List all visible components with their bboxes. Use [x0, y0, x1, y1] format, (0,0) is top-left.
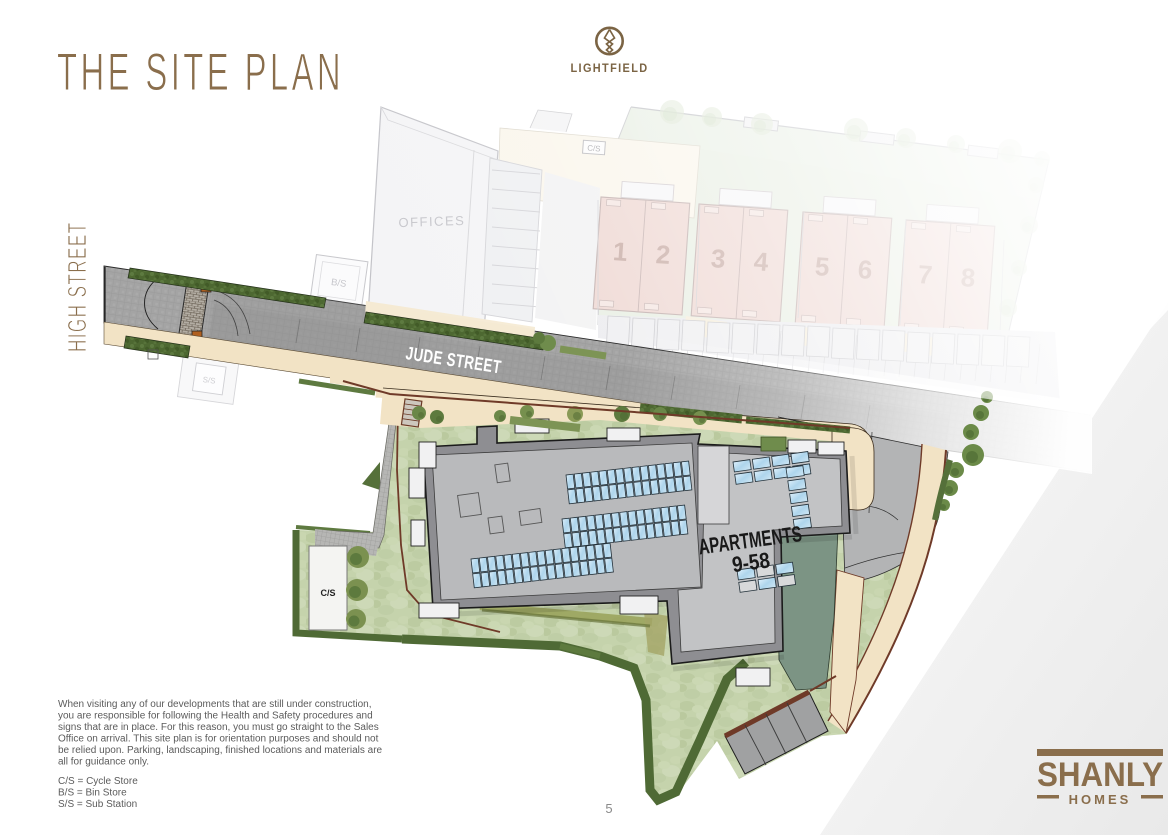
svg-text:When visiting any of our devel: When visiting any of our developments th… — [58, 699, 372, 710]
svg-text:9-58: 9-58 — [730, 547, 771, 577]
svg-text:S/S = Sub Station: S/S = Sub Station — [58, 799, 137, 810]
svg-text:LIGHTFIELD: LIGHTFIELD — [571, 61, 649, 75]
svg-text:C/S: C/S — [320, 588, 335, 598]
svg-text:B/S = Bin Store: B/S = Bin Store — [58, 788, 127, 799]
svg-text:all for guidance only.: all for guidance only. — [58, 757, 149, 768]
svg-text:THE SITE PLAN: THE SITE PLAN — [57, 43, 344, 102]
svg-text:SHANLY: SHANLY — [1037, 756, 1163, 794]
svg-text:signs that are in place. For t: signs that are in place. For this reason… — [58, 722, 379, 733]
svg-text:Office on arrival. This site p: Office on arrival. This site plan is for… — [58, 734, 379, 745]
svg-text:you are responsible for follow: you are responsible for following the He… — [58, 711, 373, 722]
svg-text:5: 5 — [605, 801, 612, 816]
svg-text:C/S = Cycle Store: C/S = Cycle Store — [58, 776, 138, 787]
svg-text:S/S: S/S — [202, 375, 216, 386]
svg-text:be relied upon. Parking, lands: be relied upon. Parking, landscaping, fi… — [58, 745, 383, 756]
svg-text:HIGH STREET: HIGH STREET — [62, 221, 92, 352]
svg-text:HOMES: HOMES — [1069, 792, 1132, 807]
